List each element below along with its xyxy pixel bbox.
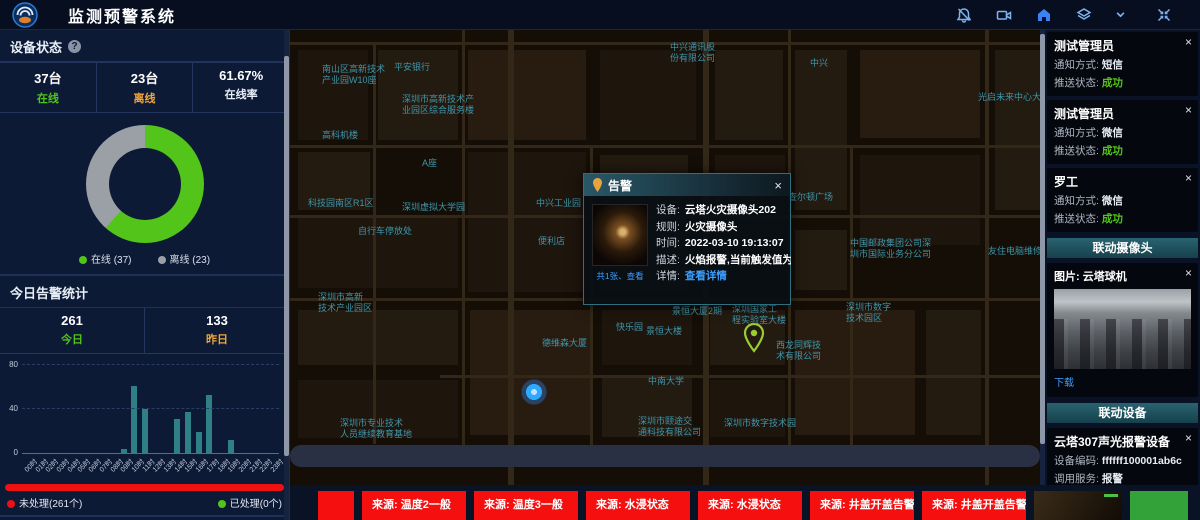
map-label: 科技园南区R1区 bbox=[308, 198, 374, 209]
map-road bbox=[290, 145, 1040, 148]
notification-card: 测试管理员×通知方式:短信推送状态:成功 bbox=[1047, 32, 1198, 96]
alert-snapshot-tile[interactable] bbox=[1034, 491, 1122, 520]
y-tick: 0 bbox=[6, 448, 18, 457]
chevron-down-icon[interactable] bbox=[1116, 6, 1134, 24]
unhandled-label: 未处理(261个) bbox=[7, 495, 82, 510]
alarm-location-pin-icon[interactable] bbox=[742, 322, 766, 354]
alert-source-tile[interactable]: 来源: 水浸状态 bbox=[698, 491, 802, 520]
map-road bbox=[373, 44, 376, 444]
active-device-dot[interactable] bbox=[520, 378, 548, 406]
bar-column bbox=[225, 365, 236, 453]
map-label: 景恒大厦2期 bbox=[672, 306, 722, 317]
handled-label: 已处理(0个) bbox=[218, 495, 282, 510]
map-label: 深圳市高新技术产 业园区综合服务楼 bbox=[402, 94, 474, 116]
map-block bbox=[468, 152, 586, 292]
map-road bbox=[290, 42, 1040, 45]
app-root: 监测预警系统 设备状态 ? bbox=[0, 0, 1200, 520]
gridline-80 bbox=[22, 364, 279, 365]
map-label: 深圳市专业技术 人员继续教育基地 bbox=[340, 418, 412, 440]
x-axis-label: 03时 bbox=[54, 454, 65, 476]
field-label: 推送状态: bbox=[1054, 213, 1099, 225]
alert-popup: 告警 × 共1张、查看 设备:云塔火灾摄像头202 规则:火灾摄像头 时间:2 bbox=[583, 173, 791, 305]
x-axis-label: 22时 bbox=[257, 454, 268, 476]
map-label: 平安银行 bbox=[394, 62, 430, 73]
bar bbox=[196, 432, 202, 453]
download-link[interactable]: 下载 bbox=[1054, 374, 1074, 389]
gridline-40 bbox=[22, 408, 279, 409]
bar-column bbox=[43, 365, 54, 453]
map-label: 中国邮政集团公司深 圳市国际业务分公司 bbox=[850, 238, 931, 260]
map-canvas[interactable]: 告警 × 共1张、查看 设备:云塔火灾摄像头202 规则:火灾摄像头 时间:2 bbox=[290, 30, 1040, 485]
legend-offline: 离线 (23) bbox=[158, 251, 211, 266]
notification-field: 通知方式:微信 bbox=[1054, 193, 1191, 208]
field-value: 微信 bbox=[1102, 195, 1123, 207]
linked-camera-header: 联动摄像头 bbox=[1047, 238, 1198, 258]
notification-card: 罗工×通知方式:微信推送状态:成功 bbox=[1047, 168, 1198, 232]
bar-column bbox=[172, 365, 183, 453]
today-alerts-table: 261 今日 133 昨日 bbox=[0, 308, 289, 354]
view-detail-link[interactable]: 查看详情 bbox=[685, 270, 727, 282]
bar bbox=[185, 412, 191, 453]
alert-field-rule: 规则:火灾摄像头 bbox=[656, 221, 791, 233]
field-label: 推送状态: bbox=[1054, 145, 1099, 157]
device-status-title: 设备状态 bbox=[10, 37, 62, 56]
x-axis-label: 00时 bbox=[22, 454, 33, 476]
close-icon[interactable]: × bbox=[1185, 36, 1192, 49]
online-count-cell: 37台 在线 bbox=[0, 63, 97, 112]
field-value: 成功 bbox=[1102, 77, 1123, 89]
map-block bbox=[470, 310, 590, 435]
notification-field: 推送状态:成功 bbox=[1054, 211, 1191, 226]
field-value: 报警 bbox=[1102, 473, 1123, 485]
field-label: 通知方式: bbox=[1054, 59, 1099, 71]
map-block bbox=[795, 50, 847, 210]
x-axis-label: 19时 bbox=[225, 454, 236, 476]
bar-column bbox=[183, 365, 194, 453]
fullscreen-toggle-icon[interactable] bbox=[1156, 6, 1174, 24]
linked-camera-card: 图片: 云塔球机 × 下载 bbox=[1047, 263, 1198, 397]
alert-field-description: 描述:火焰报警,当前触发值为... bbox=[656, 254, 791, 266]
field-value: ffffff100001ab6c bbox=[1102, 455, 1182, 467]
x-axis-label: 15时 bbox=[183, 454, 194, 476]
alert-source-tile[interactable] bbox=[318, 491, 354, 520]
help-icon[interactable]: ? bbox=[68, 40, 81, 53]
today-alerts-section: 今日告警统计 261 今日 133 昨日 0 40 80 bbox=[0, 274, 289, 515]
x-axis-label: 12时 bbox=[150, 454, 161, 476]
close-icon[interactable]: × bbox=[1185, 432, 1192, 445]
map-label: 中南大学 bbox=[648, 376, 684, 387]
device-status-table: 37台 在线 23台 离线 61.67% 在线率 bbox=[0, 62, 289, 113]
alert-source-tile[interactable]: 来源: 水浸状态 bbox=[586, 491, 690, 520]
x-axis-label: 06时 bbox=[86, 454, 97, 476]
fire-snapshot-image[interactable] bbox=[592, 204, 648, 266]
bar-column bbox=[204, 365, 215, 453]
bar-column bbox=[33, 365, 44, 453]
notification-name: 测试管理员 bbox=[1054, 105, 1191, 122]
alert-snapshot-green-tile[interactable] bbox=[1130, 491, 1188, 520]
map-label: A座 bbox=[422, 158, 437, 169]
device-status-donut-wrap bbox=[0, 119, 289, 249]
map-label: 深圳国家工 程实验室大楼 bbox=[732, 304, 786, 326]
device-name: 云塔307声光报警设备 bbox=[1054, 433, 1191, 450]
field-value: 短信 bbox=[1102, 59, 1123, 71]
today-count-cell: 261 今日 bbox=[0, 308, 145, 353]
field-value: 成功 bbox=[1102, 213, 1123, 225]
bar bbox=[131, 386, 137, 453]
bar-column bbox=[65, 365, 76, 453]
online-dot-icon bbox=[79, 256, 87, 264]
map-highway bbox=[290, 445, 1040, 467]
notification-field: 通知方式:微信 bbox=[1054, 125, 1191, 140]
bar bbox=[228, 440, 234, 453]
x-axis-label: 20时 bbox=[236, 454, 247, 476]
field-label: 通知方式: bbox=[1054, 127, 1099, 139]
x-axis-label: 01时 bbox=[33, 454, 44, 476]
y-tick: 80 bbox=[6, 360, 18, 369]
right-notify-panel: 测试管理员×通知方式:短信推送状态:成功测试管理员×通知方式:微信推送状态:成功… bbox=[1040, 30, 1200, 500]
x-axis-label: 05时 bbox=[76, 454, 87, 476]
bar-column bbox=[54, 365, 65, 453]
alert-field-time: 时间:2022-03-10 19:13:07 bbox=[656, 237, 791, 249]
field-label: 设备编码: bbox=[1054, 455, 1099, 467]
map-block bbox=[860, 50, 980, 138]
map-label: 快乐园 bbox=[616, 322, 643, 333]
map-block bbox=[926, 310, 981, 435]
page-title: 监测预警系统 bbox=[68, 3, 176, 27]
bar-column bbox=[140, 365, 151, 453]
x-axis-label: 21时 bbox=[247, 454, 258, 476]
bar bbox=[142, 409, 148, 453]
x-axis-label: 04时 bbox=[65, 454, 76, 476]
x-axis-label: 13时 bbox=[161, 454, 172, 476]
bar-column bbox=[150, 365, 161, 453]
x-axis-label: 18时 bbox=[215, 454, 226, 476]
right-panel-scrollbar[interactable] bbox=[1040, 30, 1045, 485]
map-label: 深圳市颐途交 通科技有限公司 bbox=[638, 416, 701, 438]
header-toolbar bbox=[956, 6, 1174, 24]
alert-popup-body: 共1张、查看 设备:云塔火灾摄像头202 规则:火灾摄像头 时间:2022-03… bbox=[584, 196, 790, 291]
home-icon[interactable] bbox=[1036, 6, 1054, 24]
bar-column bbox=[76, 365, 87, 453]
bar bbox=[174, 419, 180, 453]
bar bbox=[206, 395, 212, 453]
bar-column bbox=[22, 365, 33, 453]
map-label: 便利店 bbox=[538, 236, 565, 247]
map-label: 友住电脑维修 bbox=[988, 246, 1040, 257]
notification-name: 罗工 bbox=[1054, 173, 1191, 190]
notification-field: 通知方式:短信 bbox=[1054, 57, 1191, 72]
x-axis-label: 23时 bbox=[268, 454, 279, 476]
video-camera-icon[interactable] bbox=[996, 6, 1014, 24]
device-field: 设备编码:ffffff100001ab6c bbox=[1054, 453, 1191, 468]
x-axis-label: 11时 bbox=[140, 454, 151, 476]
map-road bbox=[462, 30, 465, 445]
offline-dot-icon bbox=[158, 256, 166, 264]
month-alerts-section: 本月告警统计 763 1146 bbox=[0, 515, 289, 520]
bar-column bbox=[236, 365, 247, 453]
alert-popup-header: 告警 × bbox=[584, 174, 790, 196]
alert-field-detail: 详情:查看详情 bbox=[656, 270, 791, 282]
donut-legend: 在线 (37) 离线 (23) bbox=[0, 251, 289, 274]
bar-column bbox=[215, 365, 226, 453]
map-label: 光启未来中心大厦 bbox=[978, 92, 1040, 103]
device-field: 调用服务:报警 bbox=[1054, 471, 1191, 486]
field-value: 微信 bbox=[1102, 127, 1123, 139]
close-icon[interactable]: × bbox=[1185, 104, 1192, 117]
map-label: 深圳市数字 技术园区 bbox=[846, 302, 891, 324]
close-icon[interactable]: × bbox=[1185, 267, 1192, 280]
bottom-alert-strip: 来源: 温度2一般来源: 温度3一般来源: 水浸状态来源: 水浸状态来源: 井盖… bbox=[290, 485, 1200, 520]
linked-devices-header: 联动设备 bbox=[1047, 403, 1198, 423]
alert-source-tile[interactable]: 来源: 温度2一般 bbox=[362, 491, 466, 520]
left-stats-panel: 设备状态 ? 37台 在线 23台 离线 61.67% 在线率 bbox=[0, 30, 290, 520]
notification-off-icon[interactable] bbox=[956, 6, 974, 24]
offline-count-cell: 23台 离线 bbox=[97, 63, 194, 112]
x-axis-label: 08时 bbox=[108, 454, 119, 476]
map-label: 深圳市数字技术园 bbox=[724, 418, 796, 429]
field-label: 推送状态: bbox=[1054, 77, 1099, 89]
field-value: 成功 bbox=[1102, 145, 1123, 157]
map-label: 查尔顿广场 bbox=[788, 192, 833, 203]
bar bbox=[121, 449, 127, 453]
bar-column bbox=[118, 365, 129, 453]
field-label: 调用服务: bbox=[1054, 473, 1099, 485]
bar-column bbox=[129, 365, 140, 453]
device-status-section: 设备状态 ? 37台 在线 23台 离线 61.67% 在线率 bbox=[0, 30, 289, 274]
layers-icon[interactable] bbox=[1076, 6, 1094, 24]
y-tick: 40 bbox=[6, 404, 18, 413]
map-block bbox=[298, 310, 458, 365]
handled-dot-icon bbox=[218, 500, 226, 508]
bar-column bbox=[86, 365, 97, 453]
map-block bbox=[795, 310, 915, 435]
alert-source-tile[interactable]: 来源: 井盖开盖告警 bbox=[922, 491, 1026, 520]
bar-column bbox=[268, 365, 279, 453]
top-header: 监测预警系统 bbox=[0, 0, 1200, 30]
map-label: 德维森大厦 bbox=[542, 338, 587, 349]
unhandled-progress-bar bbox=[5, 484, 284, 491]
map-block bbox=[602, 310, 692, 365]
map-label: 西龙同辉技 术有限公司 bbox=[776, 340, 821, 362]
x-axis-label: 14时 bbox=[172, 454, 183, 476]
bar-column bbox=[247, 365, 258, 453]
map-label: 深圳虚拟大学园 bbox=[402, 202, 465, 213]
close-icon[interactable]: × bbox=[774, 179, 782, 192]
yesterday-count-cell: 133 昨日 bbox=[145, 308, 289, 353]
x-axis-label: 16时 bbox=[193, 454, 204, 476]
bar-column bbox=[193, 365, 204, 453]
app-logo-icon bbox=[12, 2, 38, 28]
map-label: 自行车停放处 bbox=[358, 226, 412, 237]
snapshot-caption-link[interactable]: 共1张、查看 bbox=[592, 270, 648, 282]
close-icon[interactable]: × bbox=[1185, 172, 1192, 185]
map-block bbox=[468, 50, 586, 140]
handled-legend: 未处理(261个) 已处理(0个) bbox=[0, 491, 289, 515]
notification-field: 推送状态:成功 bbox=[1054, 143, 1191, 158]
map-block bbox=[715, 50, 783, 140]
alert-popup-title: 告警 bbox=[608, 177, 632, 194]
notification-field: 推送状态:成功 bbox=[1054, 75, 1191, 90]
map-block bbox=[860, 155, 980, 245]
map-label: 深圳市高新 技术产业园区 bbox=[318, 292, 372, 314]
map-road bbox=[508, 30, 514, 485]
scrollbar-thumb[interactable] bbox=[284, 56, 289, 456]
map-block bbox=[995, 50, 1040, 210]
x-axis-label: 02时 bbox=[43, 454, 54, 476]
x-axis-label: 17时 bbox=[204, 454, 215, 476]
bar-column bbox=[257, 365, 268, 453]
device-status-donut-chart bbox=[86, 125, 204, 243]
hourly-alert-bar-chart: 0 40 80 00时01时02时03时04时05时06时07时08时09时10… bbox=[22, 366, 279, 478]
camera-snapshot-image[interactable] bbox=[1054, 289, 1191, 369]
bar-column bbox=[108, 365, 119, 453]
legend-online: 在线 (37) bbox=[79, 251, 132, 266]
map-road bbox=[850, 145, 853, 445]
x-axis-label: 09时 bbox=[118, 454, 129, 476]
unhandled-dot-icon bbox=[7, 500, 15, 508]
field-label: 通知方式: bbox=[1054, 195, 1099, 207]
map-label: 南山区高新技术 产业园W10座 bbox=[322, 64, 385, 86]
bar-column bbox=[97, 365, 108, 453]
x-axis-label: 07时 bbox=[97, 454, 108, 476]
map-label: 中兴工业园 bbox=[536, 198, 581, 209]
bar-column bbox=[161, 365, 172, 453]
alert-source-tile[interactable]: 来源: 井盖开盖告警 bbox=[810, 491, 914, 520]
map-label: 高科机楼 bbox=[322, 130, 358, 141]
today-alerts-title: 今日告警统计 bbox=[10, 283, 88, 302]
alert-field-device: 设备:云塔火灾摄像头202 bbox=[656, 204, 791, 216]
notification-card: 测试管理员×通知方式:微信推送状态:成功 bbox=[1047, 100, 1198, 164]
online-rate-cell: 61.67% 在线率 bbox=[193, 63, 289, 112]
x-axis-label: 10时 bbox=[129, 454, 140, 476]
scrollbar-thumb[interactable] bbox=[1040, 34, 1045, 444]
camera-image-label: 图片: 云塔球机 bbox=[1054, 268, 1191, 284]
map-block bbox=[795, 230, 847, 290]
notification-name: 测试管理员 bbox=[1054, 37, 1191, 54]
map-label: 中兴通讯股 份有限公司 bbox=[670, 42, 715, 64]
map-label: 中兴 bbox=[810, 58, 828, 69]
left-panel-scrollbar[interactable] bbox=[284, 30, 289, 520]
alert-source-tile[interactable]: 来源: 温度3一般 bbox=[474, 491, 578, 520]
map-label: 景恒大楼 bbox=[646, 326, 682, 337]
alarm-pin-icon bbox=[592, 178, 603, 192]
